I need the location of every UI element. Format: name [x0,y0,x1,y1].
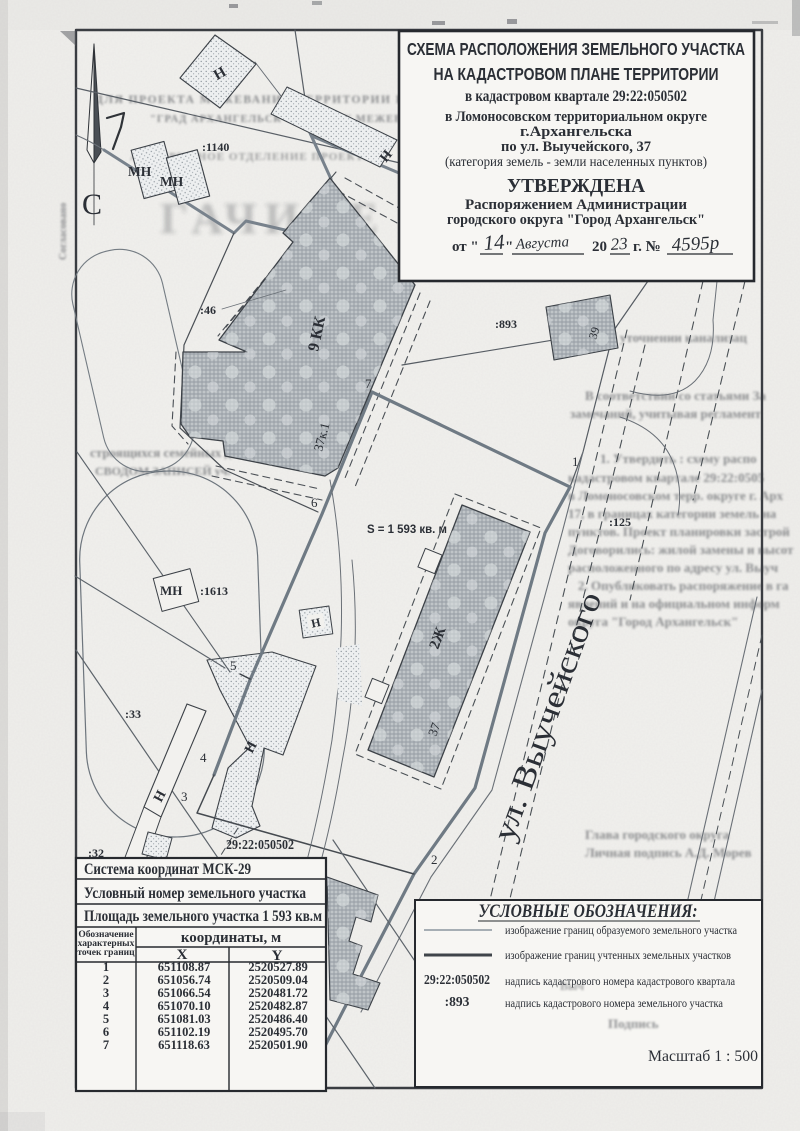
svg-text::893: :893 [495,317,517,331]
svg-text:2520482.87: 2520482.87 [248,999,307,1013]
svg-text:Система координат МСК-29: Система координат МСК-29 [84,861,251,878]
svg-text:4: 4 [103,999,110,1013]
svg-text:": " [505,239,513,255]
svg-text:расположенного по адресу ул. В: расположенного по адресу ул. Выуч [568,560,778,575]
svg-text:1. Утвердить : схему распо: 1. Утвердить : схему распо [600,451,757,466]
svg-text:7: 7 [103,1038,109,1052]
svg-text::46: :46 [200,303,216,317]
svg-text:Об уточнении канализац: Об уточнении канализац [600,330,747,345]
svg-text:5: 5 [103,1012,109,1026]
svg-text:29:22:050502: 29:22:050502 [226,837,294,852]
svg-text:МН: МН [160,174,184,189]
svg-text:651118.63: 651118.63 [158,1038,210,1052]
svg-text:2. Опубликовать распоряжение в: 2. Опубликовать распоряжение в га [578,578,789,593]
svg-text:МН: МН [160,583,182,598]
svg-text:Масштаб 1 : 500: Масштаб 1 : 500 [648,1048,758,1065]
svg-text:651056.74: 651056.74 [157,973,211,987]
svg-text:Выч: Выч [560,979,584,993]
svg-text:С: С [82,188,102,221]
svg-text:1: 1 [572,454,579,469]
svg-text:г. №: г. № [633,239,661,255]
svg-text:20: 20 [592,239,607,255]
svg-text:2: 2 [431,852,438,867]
svg-text:3: 3 [181,789,188,804]
svg-text:МН: МН [128,164,152,179]
svg-text:точек границ: точек границ [77,948,135,958]
svg-text:надпись кадастрового номера зе: надпись кадастрового номера земельного у… [505,996,724,1010]
svg-text::33: :33 [125,707,141,721]
svg-text:6: 6 [103,1025,109,1039]
svg-text:Глава городского округа: Глава городского округа [585,827,730,842]
svg-text:г.Архангельска: г.Архангельска [520,124,633,140]
svg-text:3: 3 [103,986,109,1000]
svg-text:в Ломоносовском терр. округе г: в Ломоносовском терр. округе г. Арх [568,488,784,503]
svg-text:2: 2 [103,973,109,987]
svg-text::893: :893 [445,994,470,1009]
svg-text:Подпись: Подпись [608,1016,659,1031]
svg-text:2520495.70: 2520495.70 [248,1025,307,1039]
svg-text:СХЕМА РАСПОЛОЖЕНИЯ ЗЕМЕЛЬНОГО: СХЕМА РАСПОЛОЖЕНИЯ ЗЕМЕЛЬНОГО УЧАСТКА [407,39,745,59]
svg-text:изображение границ образуемого: изображение границ образуемого земельног… [505,923,738,937]
svg-text::1613: :1613 [200,584,228,598]
svg-text:6: 6 [311,495,318,510]
svg-text:замечаний, учитывая регламент: замечаний, учитывая регламент [570,406,762,421]
svg-text:(категория земель - земли насе: (категория земель - земли населенных пун… [445,155,707,170]
svg-text:Договорились: жилой замены и в: Договорились: жилой замены и высот [568,542,794,557]
svg-text:в Ломоносовском территориально: в Ломоносовском территориальном округе [445,109,708,125]
svg-text:29:22:050502: 29:22:050502 [424,972,490,987]
svg-text:2520509.04: 2520509.04 [248,973,308,987]
svg-text:651070.10: 651070.10 [157,999,210,1013]
svg-text:Условный номер земельного учас: Условный номер земельного участка [84,885,306,902]
svg-text:651102.19: 651102.19 [158,1025,210,1039]
svg-text:надпись кадастрового номера ка: надпись кадастрового номера кадастрового… [505,974,736,988]
svg-text:в кадастровом квартале 29:22:0: в кадастровом квартале 29:22:050502 [465,88,687,105]
svg-text:2520527.89: 2520527.89 [248,960,307,974]
svg-text:Площадь земельного участка 1 5: Площадь земельного участка 1 593 кв.м [84,908,322,925]
svg-text:651081.03: 651081.03 [157,1012,210,1026]
svg-text:городского округа "Город Архан: городского округа "Город Архангельск" [447,212,705,228]
svg-text:УСЛОВНЫЕ ОБОЗНАЧЕНИЯ:: УСЛОВНЫЕ ОБОЗНАЧЕНИЯ: [479,901,698,922]
svg-text:от ": от " [452,239,479,255]
svg-text:Согласовано: Согласовано [58,203,69,260]
svg-text:2520486.40: 2520486.40 [248,1012,307,1026]
svg-text:23: 23 [610,234,628,254]
svg-text:Августа: Августа [514,234,569,253]
svg-text:5: 5 [230,658,237,673]
svg-text:651066.54: 651066.54 [157,986,211,1000]
svg-text:S = 1 593 кв. м: S = 1 593 кв. м [367,524,447,536]
svg-text:2520481.72: 2520481.72 [248,986,307,1000]
svg-text:17, в границах категории земел: 17, в границах категории земель на [568,506,777,521]
svg-text:Распоряжением Администрации: Распоряжением Администрации [465,197,687,213]
svg-text:2520501.90: 2520501.90 [248,1038,307,1052]
svg-text:координаты, м: координаты, м [181,930,281,946]
svg-text:4595р: 4595р [671,233,720,256]
svg-text:1: 1 [103,960,109,974]
svg-text:7: 7 [365,376,372,391]
svg-text:4: 4 [200,750,207,765]
svg-text:изображение границ учтенных зе: изображение границ учтенных земельных уч… [505,948,731,962]
svg-text:УТВЕРЖДЕНА: УТВЕРЖДЕНА [507,175,646,197]
svg-text:НА КАДАСТРОВОМ ПЛАНЕ ТЕРРИТОРИ: НА КАДАСТРОВОМ ПЛАНЕ ТЕРРИТОРИИ [434,64,719,84]
svg-text:651108.87: 651108.87 [158,960,210,974]
svg-text::125: :125 [609,515,631,529]
svg-text:кадастровом квартале 29:22:050: кадастровом квартале 29:22:0505 [568,470,765,485]
svg-text:14: 14 [483,230,506,255]
svg-text:по ул. Выучейского, 37: по ул. Выучейского, 37 [501,139,651,155]
svg-text::1140: :1140 [202,140,229,154]
